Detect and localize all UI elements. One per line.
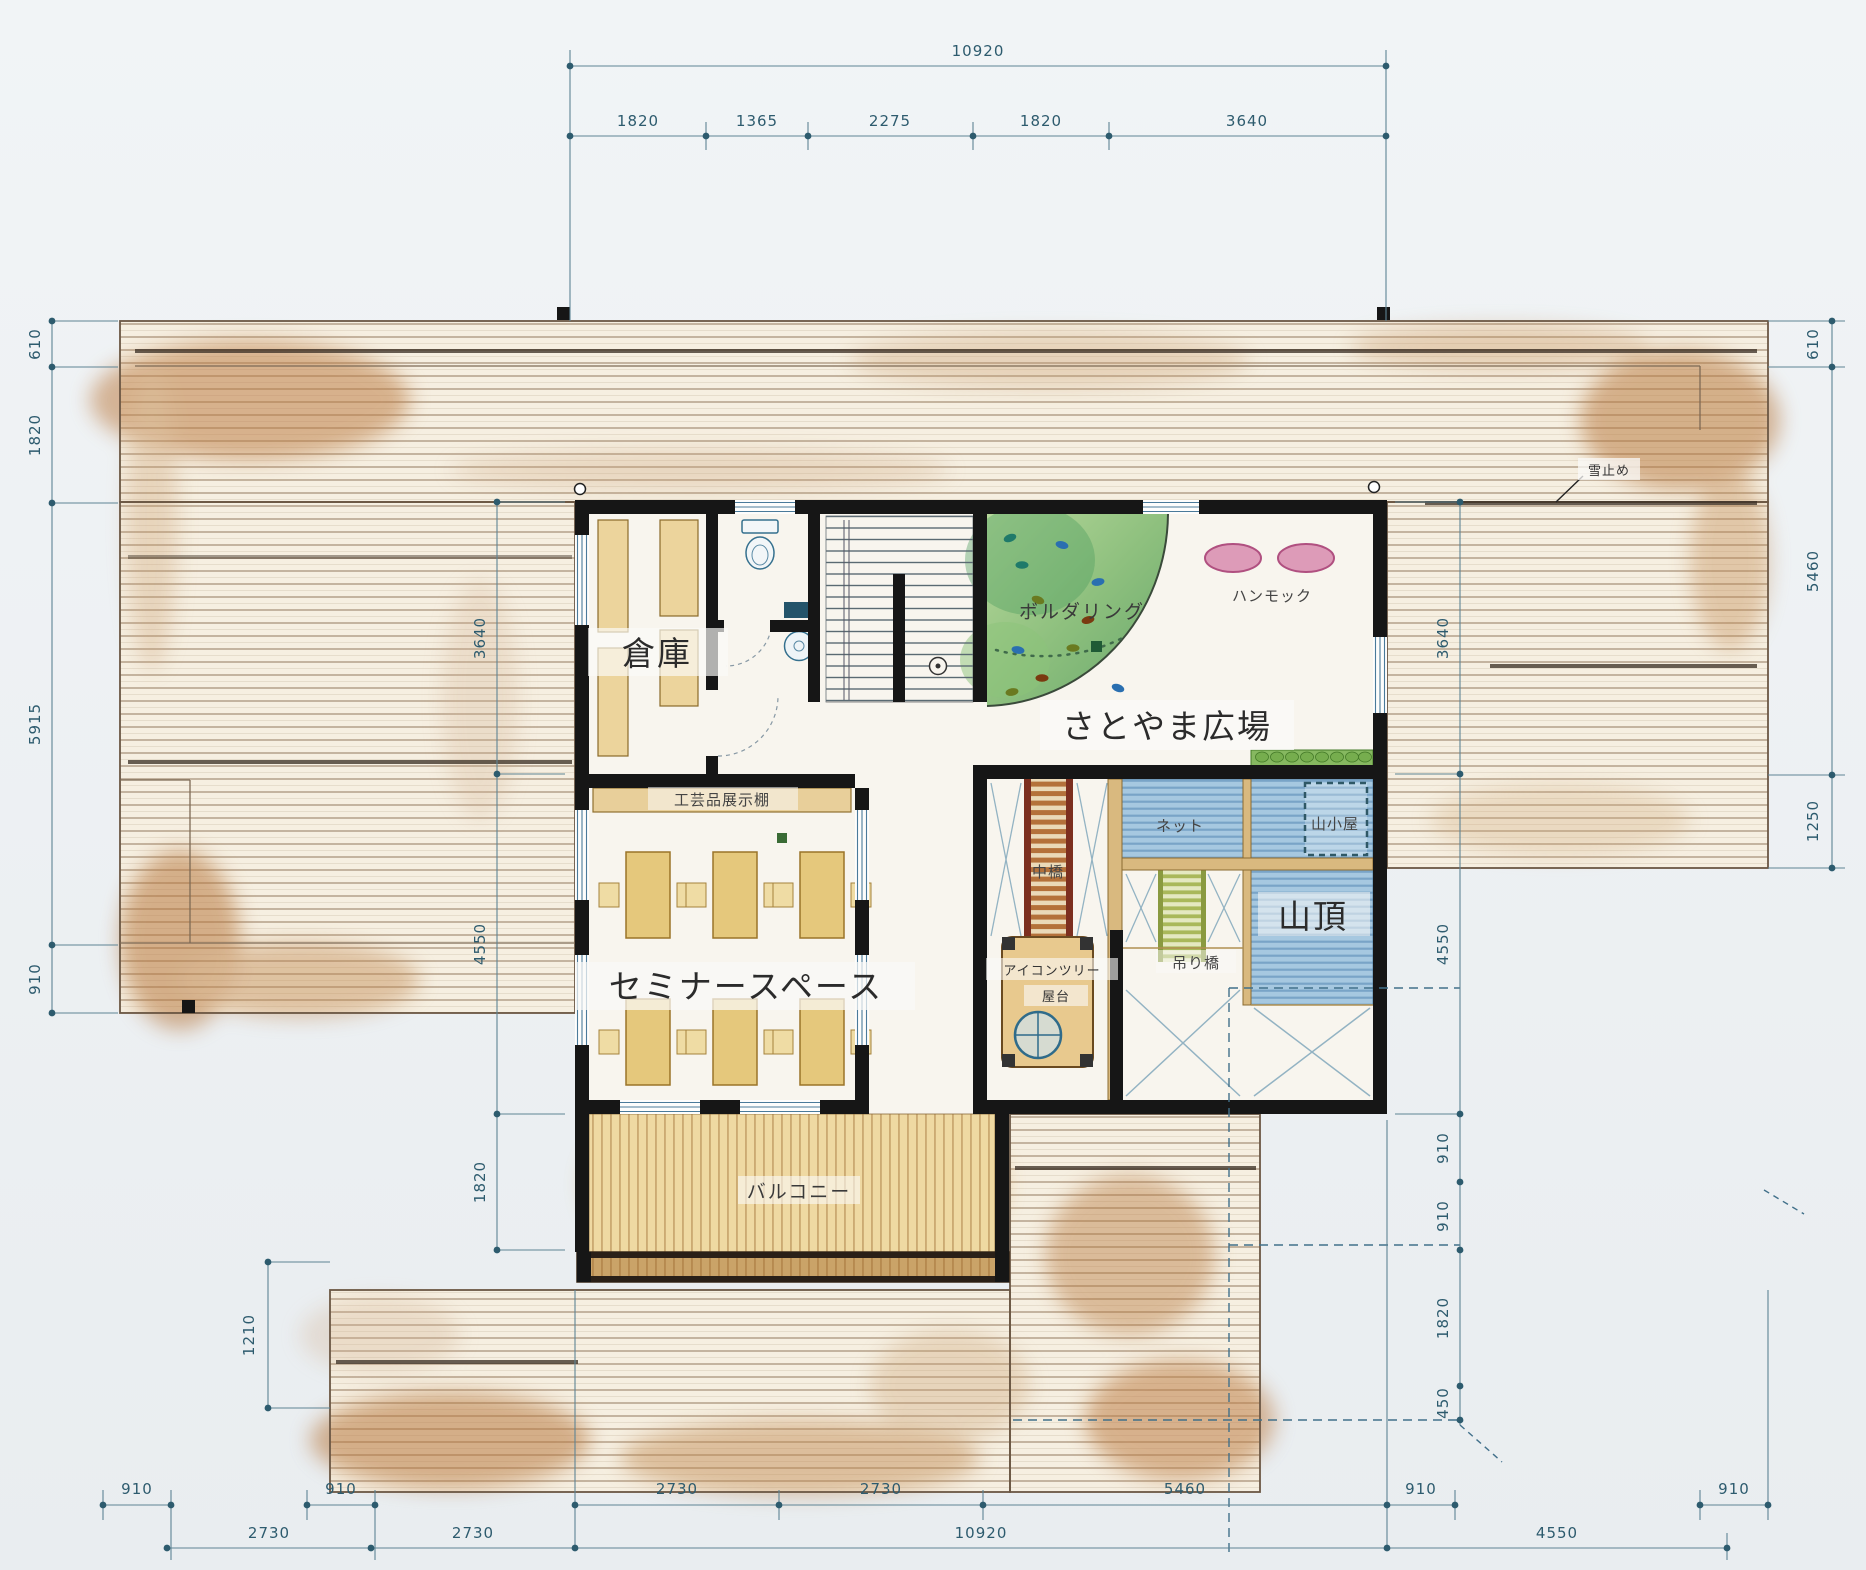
svg-text:1820: 1820 xyxy=(1434,1297,1452,1339)
hammock-ellipse xyxy=(1205,544,1261,572)
toilet-icon xyxy=(742,520,778,533)
svg-text:3640: 3640 xyxy=(1434,617,1452,659)
svg-text:4550: 4550 xyxy=(1536,1524,1578,1542)
label-net: ネット xyxy=(1156,817,1204,835)
window xyxy=(1143,500,1199,514)
svg-text:2275: 2275 xyxy=(869,112,911,130)
svg-text:4550: 4550 xyxy=(1434,923,1452,965)
plan-svg: 雪止め xyxy=(0,0,1866,1570)
svg-text:3640: 3640 xyxy=(1226,112,1268,130)
svg-text:910: 910 xyxy=(1718,1480,1750,1498)
svg-text:910: 910 xyxy=(325,1480,357,1498)
window xyxy=(740,1100,820,1114)
svg-text:2730: 2730 xyxy=(452,1524,494,1542)
svg-text:1365: 1365 xyxy=(736,112,778,130)
label-suspension-bridge: 吊り橋 xyxy=(1172,954,1220,972)
label-seminar: セミナースペース xyxy=(609,967,883,1006)
table xyxy=(713,999,757,1085)
window xyxy=(620,1100,700,1114)
label-souko: 倉庫 xyxy=(622,634,692,673)
svg-text:610: 610 xyxy=(1804,328,1822,360)
floor-plan-drawing: 雪止め xyxy=(0,0,1866,1570)
label-plaza: さとやま広場 xyxy=(1062,707,1272,746)
svg-text:910: 910 xyxy=(1405,1480,1437,1498)
window xyxy=(855,810,869,900)
svg-text:910: 910 xyxy=(1434,1200,1452,1232)
window xyxy=(575,810,589,900)
svg-text:4550: 4550 xyxy=(471,923,489,965)
label-summit: 山頂 xyxy=(1278,897,1348,936)
table xyxy=(626,852,670,938)
svg-text:910: 910 xyxy=(121,1480,153,1498)
hammock-ellipse xyxy=(1278,544,1334,572)
label-bouldering: ボルダリング xyxy=(1019,601,1145,623)
label-mountain-hut: 山小屋 xyxy=(1311,815,1359,833)
planter-strip xyxy=(1251,750,1373,766)
svg-text:1820: 1820 xyxy=(26,414,44,456)
svg-text:5460: 5460 xyxy=(1804,550,1822,592)
table xyxy=(626,999,670,1085)
label-craft-shelf: 工芸品展示棚 xyxy=(674,791,770,809)
svg-text:1820: 1820 xyxy=(1020,112,1062,130)
svg-text:2730: 2730 xyxy=(656,1480,698,1498)
middle-bridge xyxy=(1024,772,1073,938)
svg-text:5915: 5915 xyxy=(26,703,44,745)
svg-text:1210: 1210 xyxy=(240,1314,258,1356)
snow-stop-label: 雪止め xyxy=(1588,464,1630,479)
svg-text:910: 910 xyxy=(26,963,44,995)
svg-text:910: 910 xyxy=(1434,1132,1452,1164)
svg-text:610: 610 xyxy=(26,328,44,360)
svg-text:10920: 10920 xyxy=(955,1524,1008,1542)
svg-text:1250: 1250 xyxy=(1804,800,1822,842)
table xyxy=(800,852,844,938)
svg-text:2730: 2730 xyxy=(248,1524,290,1542)
svg-text:1820: 1820 xyxy=(471,1161,489,1203)
label-middle-bridge: 中橋 xyxy=(1032,863,1064,881)
svg-text:3640: 3640 xyxy=(471,617,489,659)
svg-text:5460: 5460 xyxy=(1164,1480,1206,1498)
svg-text:2730: 2730 xyxy=(860,1480,902,1498)
window xyxy=(575,535,589,625)
label-balcony: バルコニー xyxy=(747,1181,852,1203)
svg-text:1820: 1820 xyxy=(617,112,659,130)
table xyxy=(713,852,757,938)
label-icon-tree-1: アイコンツリー xyxy=(1003,964,1100,979)
table xyxy=(800,999,844,1085)
dim-top-total: 10920 xyxy=(952,42,1005,60)
label-hammock: ハンモック xyxy=(1232,587,1312,605)
label-icon-tree-2: 屋台 xyxy=(1042,990,1070,1005)
window xyxy=(1373,637,1387,713)
window xyxy=(735,500,795,514)
svg-text:450: 450 xyxy=(1434,1387,1452,1419)
